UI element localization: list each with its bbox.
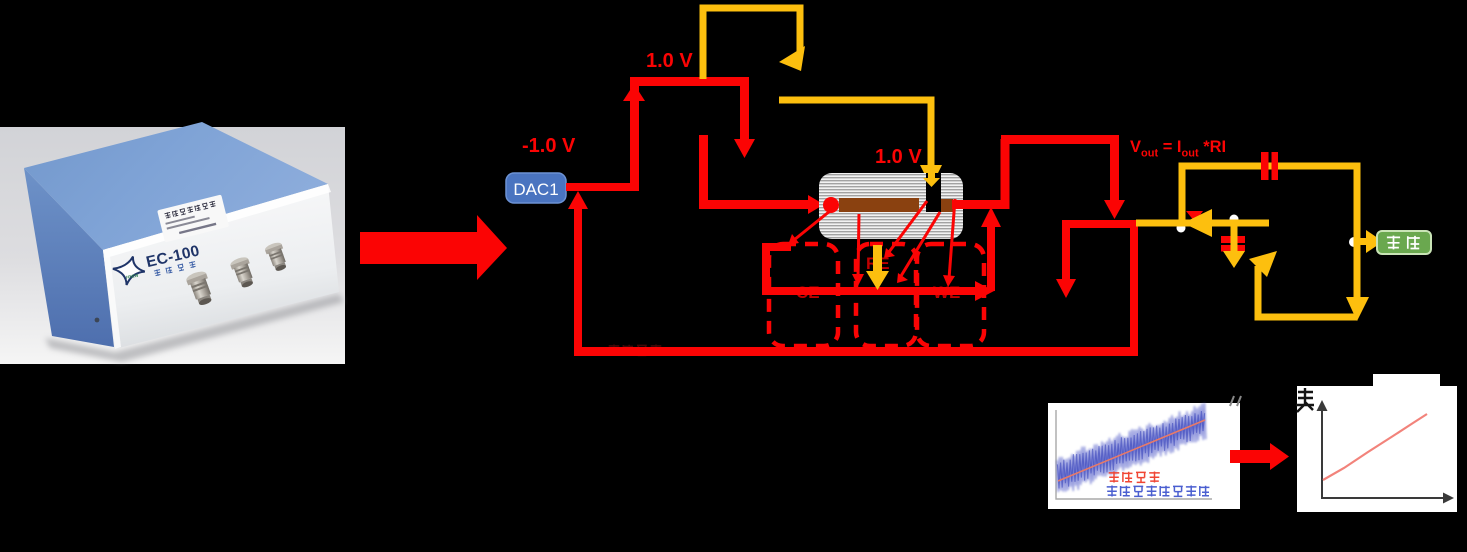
svg-text:1.0 V: 1.0 V <box>875 146 922 168</box>
svg-text:1.0 V: 1.0 V <box>646 50 693 72</box>
svg-text:DAC1: DAC1 <box>513 180 558 199</box>
svg-text:-1.0 V: -1.0 V <box>522 135 576 157</box>
